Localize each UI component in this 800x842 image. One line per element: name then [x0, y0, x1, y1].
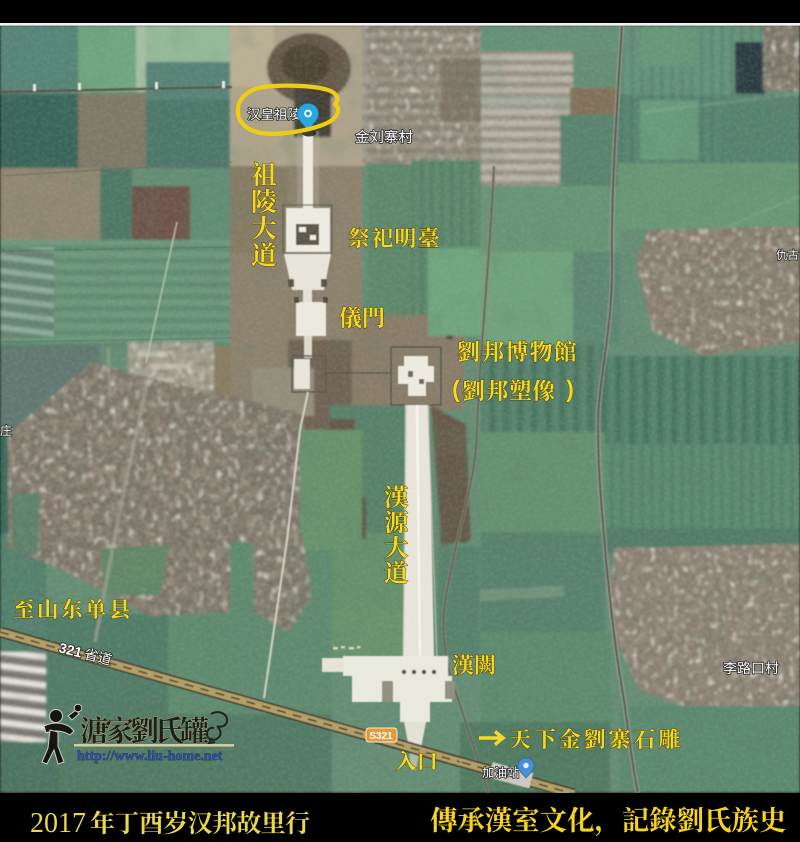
svg-text:2017: 2017 [30, 808, 86, 839]
svg-text:(: ( [452, 376, 460, 403]
svg-text:): ) [566, 376, 574, 403]
svg-text:http://www.liu-home.net: http://www.liu-home.net [77, 749, 223, 764]
svg-text:S321: S321 [369, 731, 393, 742]
